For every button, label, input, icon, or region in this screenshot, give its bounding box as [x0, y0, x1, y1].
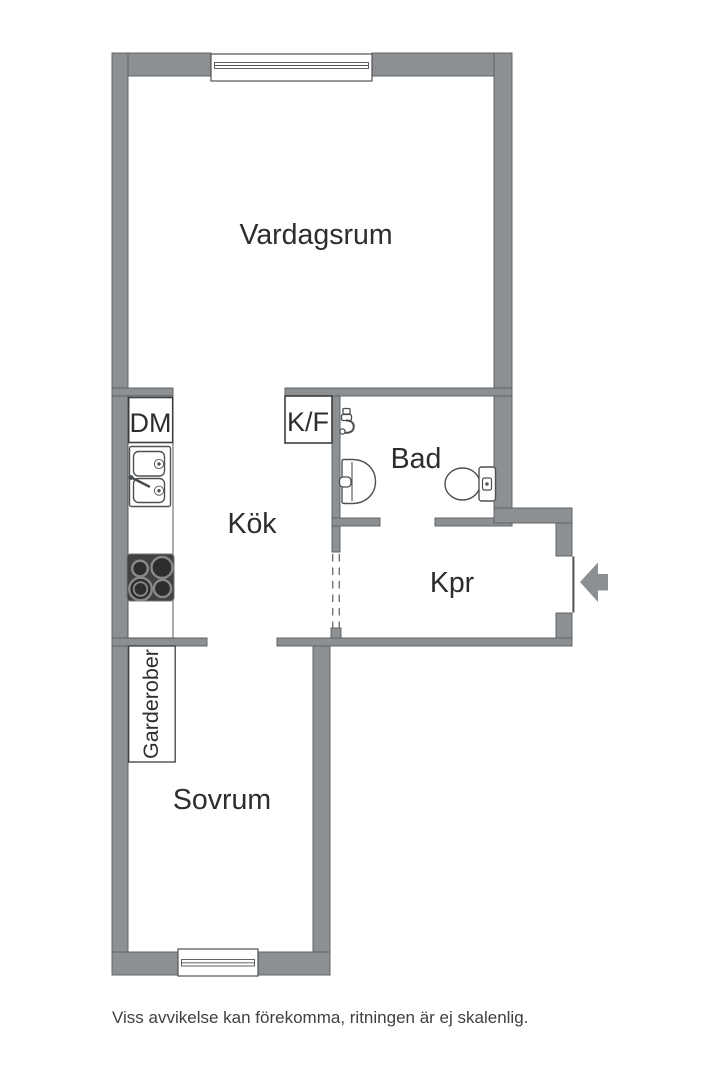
room-label-sovrum: Sovrum — [173, 784, 271, 816]
fridge-freezer-label: K/F — [287, 407, 329, 437]
wall-segment — [332, 518, 380, 526]
dishwasher-label: DM — [130, 408, 172, 438]
wall-segment — [112, 952, 178, 975]
shower-mixer-icon — [340, 409, 354, 435]
wall-segment — [112, 388, 173, 396]
room-label-vardagsrum: Vardagsrum — [239, 219, 392, 251]
stove-icon — [127, 554, 174, 601]
room-label-bad: Bad — [391, 443, 442, 475]
open-passage-dashed-lines — [333, 554, 340, 628]
wall-segment — [494, 508, 572, 523]
wall-segment — [112, 638, 207, 646]
walls — [112, 53, 572, 975]
floorplan-canvas: Vardagsrum Kök Bad Kpr Sovrum DM K/F Gar… — [0, 0, 720, 1080]
floor-plan: Vardagsrum Kök Bad Kpr Sovrum DM K/F Gar… — [0, 0, 720, 1080]
washbasin-icon — [340, 460, 376, 504]
wardrobe-label: Garderober — [139, 649, 163, 759]
sink-icon — [129, 447, 171, 507]
wall-segment — [331, 628, 341, 638]
wall-segment — [332, 396, 340, 552]
wall-segment — [112, 53, 128, 975]
wall-segment — [556, 523, 572, 556]
room-label-kok: Kök — [227, 508, 277, 540]
wall-segment — [313, 646, 330, 975]
wall-segment — [277, 638, 572, 646]
window-icon — [178, 949, 258, 976]
disclaimer-text: Viss avvikelse kan förekomma, ritningen … — [112, 1008, 528, 1028]
room-label-kpr: Kpr — [430, 567, 475, 599]
entrance-arrow-icon — [580, 563, 608, 603]
wall-segment — [285, 388, 512, 396]
window-icon — [211, 54, 372, 81]
wall-segment — [372, 53, 512, 76]
wall-segment — [258, 952, 330, 975]
toilet-icon — [445, 467, 496, 501]
wall-segment — [494, 53, 512, 523]
